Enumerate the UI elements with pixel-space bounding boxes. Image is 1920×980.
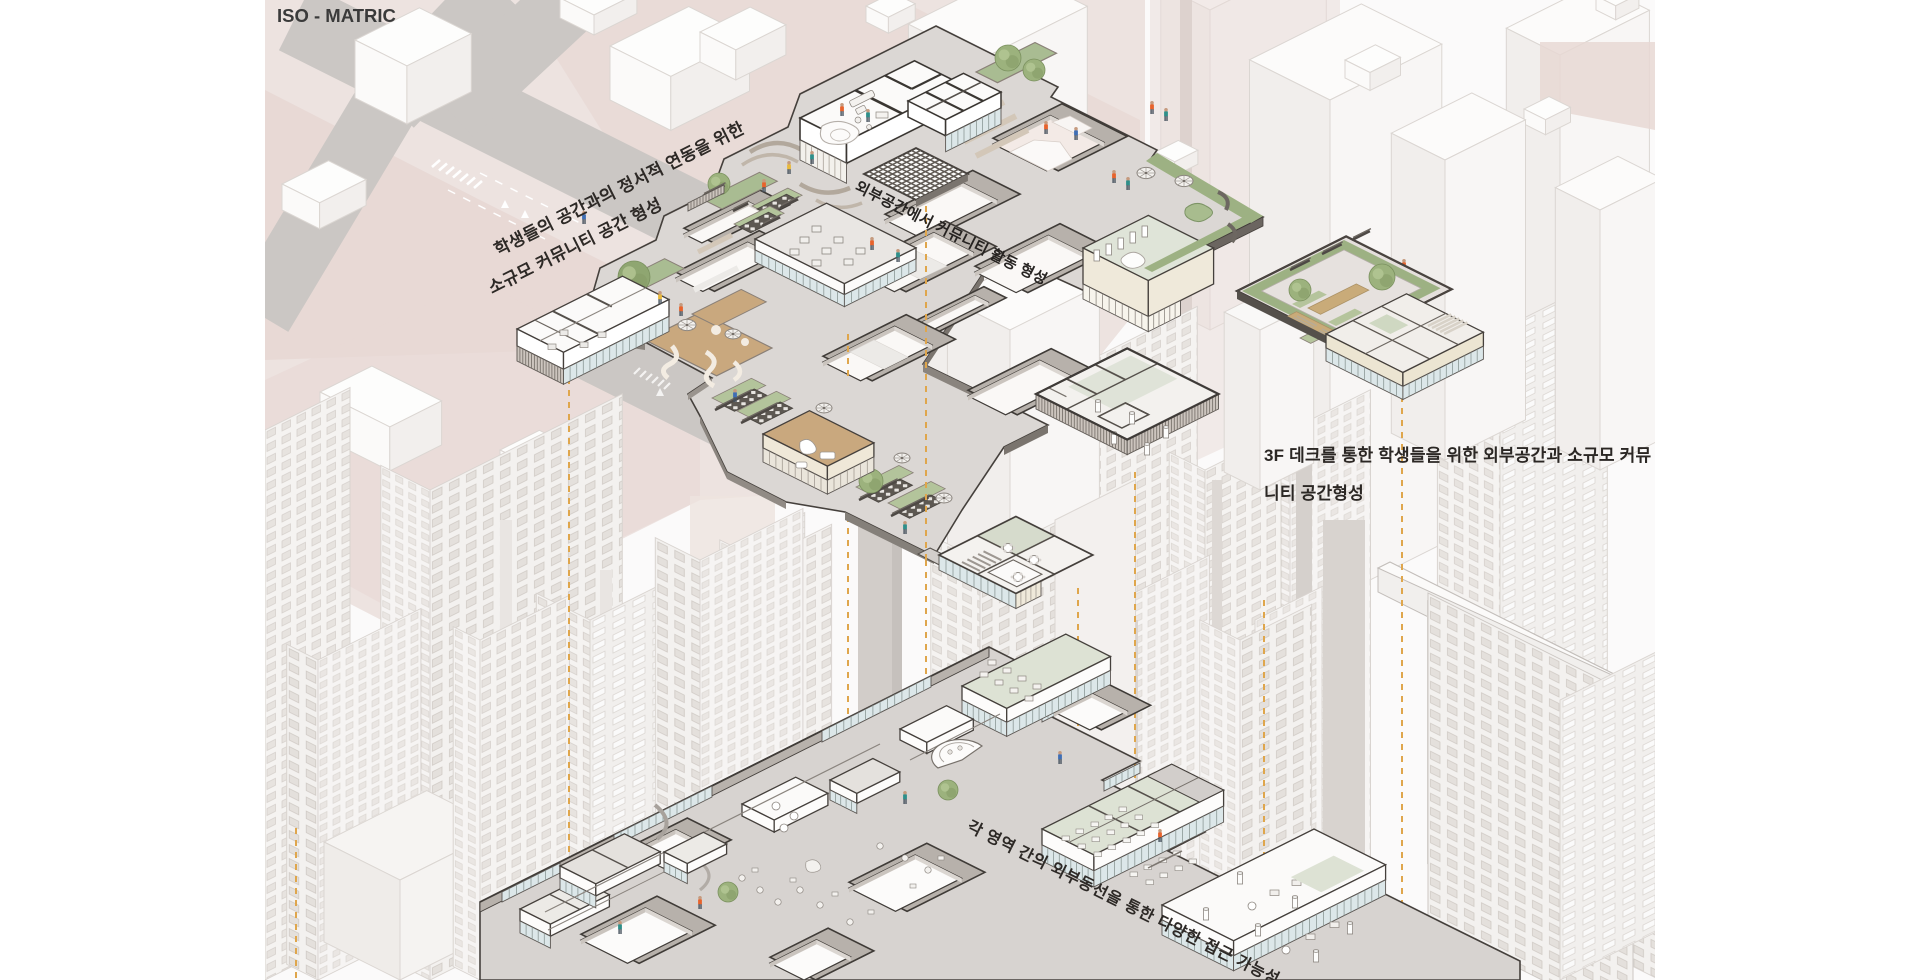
- svg-text:3F 데크를 통한 학생들을 위한 외부공간과 소규모 커뮤: 3F 데크를 통한 학생들을 위한 외부공간과 소규모 커뮤: [1264, 446, 1652, 465]
- svg-text:니티 공간형성: 니티 공간형성: [1264, 483, 1364, 503]
- svg-text:ISO - MATRIC: ISO - MATRIC: [277, 5, 396, 26]
